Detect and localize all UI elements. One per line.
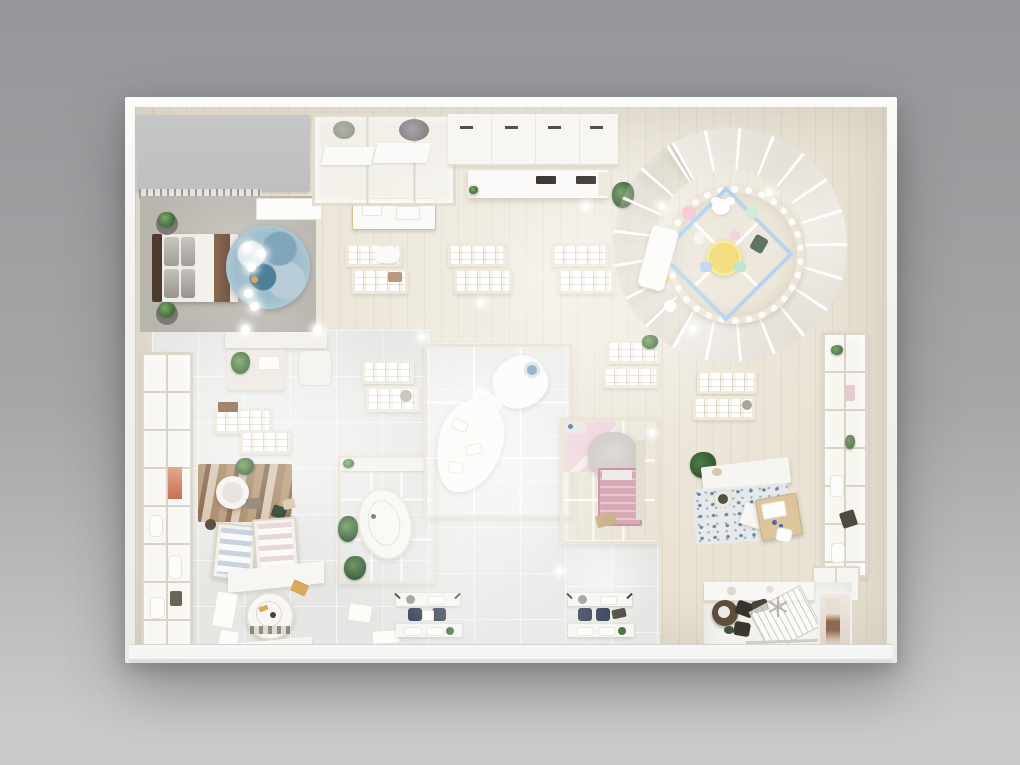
cabinet-handle xyxy=(590,126,603,129)
island-display-item xyxy=(576,176,596,184)
shelf-bottle xyxy=(150,597,165,619)
desk-cards xyxy=(428,596,445,605)
ceiling-spot xyxy=(659,203,665,209)
desk-set xyxy=(566,593,634,639)
checkout-table-tray xyxy=(718,606,730,618)
table-compartments xyxy=(365,363,411,381)
checkout-chair xyxy=(733,621,751,638)
angled-display-slab xyxy=(321,147,375,165)
dark-display-item xyxy=(611,608,627,620)
kids-chair-mint xyxy=(734,262,746,272)
ceiling-spot xyxy=(419,334,425,340)
table-compartments xyxy=(561,271,611,291)
table-wood-item xyxy=(388,272,402,282)
desk-pot xyxy=(578,595,587,604)
bed-pillow xyxy=(164,269,179,298)
blue-round-rug xyxy=(226,225,310,309)
floor-card-display xyxy=(347,602,373,623)
ceiling-spot xyxy=(649,430,655,436)
desk-blue-flowers xyxy=(772,520,777,525)
table-pouf xyxy=(742,400,752,410)
right-shelf-grid xyxy=(825,335,865,575)
angled-display-slab xyxy=(373,143,432,163)
lounge-item xyxy=(598,627,616,636)
table-compartments xyxy=(457,271,509,291)
toy-ball-pink xyxy=(682,206,696,220)
ceiling-spot xyxy=(478,300,484,306)
desk-set xyxy=(394,593,462,639)
bed-pillow xyxy=(181,237,195,266)
lounge-item xyxy=(404,627,422,636)
pendant-light xyxy=(243,243,252,252)
display-table xyxy=(558,268,614,294)
ottoman xyxy=(246,498,261,509)
kids-chair-blue xyxy=(700,262,712,272)
pendant-light xyxy=(244,289,253,298)
navy-chair xyxy=(596,608,610,621)
cabinet-compartments xyxy=(217,411,269,431)
bunny-toy xyxy=(712,199,730,215)
cabinet-wood-box xyxy=(218,402,238,412)
display-table xyxy=(697,370,757,394)
flower-bouquet xyxy=(399,119,429,141)
pendant-light xyxy=(241,325,250,334)
counter-item xyxy=(712,468,722,476)
green-pot xyxy=(618,627,626,635)
navy-chair xyxy=(578,608,592,621)
table-compartments xyxy=(700,373,754,391)
shelf-pink-item xyxy=(845,385,855,401)
table-compartments xyxy=(606,369,656,385)
shelf-bottle xyxy=(831,543,845,563)
bed-duvet xyxy=(196,234,214,302)
navy-chair xyxy=(408,608,422,621)
bed-pillow xyxy=(181,269,195,298)
top-wall-glass-cabinet xyxy=(312,114,456,206)
side-stool xyxy=(205,519,216,530)
nursery-side-rail xyxy=(636,440,645,520)
island-display-item xyxy=(536,176,556,184)
ceiling-spot xyxy=(583,203,589,209)
desk-cards xyxy=(600,596,617,605)
table-item xyxy=(258,356,280,370)
cabinet-handle xyxy=(548,126,561,129)
table-pouf xyxy=(400,390,412,402)
counter-mini-shelf xyxy=(447,461,463,474)
cabinet-handle xyxy=(505,126,518,129)
display-table xyxy=(603,366,659,388)
render-backdrop xyxy=(0,0,1020,765)
desk-pot xyxy=(406,595,415,604)
display-items-row xyxy=(250,626,290,634)
shelf-bottle xyxy=(168,555,182,579)
left-wall-shelf xyxy=(141,352,193,656)
ceiling-spot xyxy=(766,190,772,196)
table-compartments xyxy=(555,246,605,264)
flower-bouquet xyxy=(333,121,355,139)
desk-mini-table xyxy=(422,610,434,621)
pendant-light-gold xyxy=(251,276,258,283)
basin-display xyxy=(298,350,332,386)
counter-item xyxy=(371,514,376,519)
lounge-item xyxy=(576,627,594,636)
round-stool xyxy=(714,490,732,508)
toddler-bed-pillow xyxy=(602,470,632,480)
entrance-walkway xyxy=(129,644,893,660)
toy-ball-white xyxy=(664,300,676,312)
kids-chair-pink xyxy=(730,231,740,240)
entry-table-item xyxy=(396,206,420,220)
display-table xyxy=(454,268,512,294)
toy-ball-mint xyxy=(746,206,759,219)
cabinet-compartments xyxy=(243,433,289,451)
table-cushion xyxy=(374,247,400,263)
island-counter xyxy=(468,170,608,198)
table-dark-item xyxy=(270,612,276,618)
bed-headboard xyxy=(152,234,162,302)
storefront-front-face xyxy=(129,659,893,663)
bunny-toy-small xyxy=(694,232,704,244)
display-cabinet xyxy=(240,430,292,454)
shelf-artwork xyxy=(168,467,182,499)
shelf-bottle xyxy=(149,515,163,537)
pendant-light xyxy=(313,325,322,334)
lounge-item xyxy=(426,627,444,636)
navy-chair xyxy=(432,608,446,621)
toybox-item xyxy=(568,424,573,429)
display-table xyxy=(552,243,608,267)
ceiling-spot xyxy=(690,326,696,332)
green-pot xyxy=(446,627,454,635)
shelf-bottle xyxy=(830,475,844,497)
island-end-shelf xyxy=(598,172,610,196)
pendant-light xyxy=(257,249,266,258)
table-compartments xyxy=(451,246,503,264)
cabinet-handle xyxy=(460,126,473,129)
window-poster-photo xyxy=(826,598,840,650)
display-table xyxy=(362,360,414,384)
desk-chair xyxy=(775,526,794,543)
top-wall-white-cabinet xyxy=(448,114,618,166)
pendant-light xyxy=(247,263,256,272)
right-wall-shelf xyxy=(822,332,868,578)
armchair-seat xyxy=(222,482,243,503)
round-table-ring xyxy=(256,601,282,627)
counter-fan-display xyxy=(524,362,540,378)
display-table xyxy=(366,386,420,412)
shelf-dark-item xyxy=(170,591,182,606)
display-table xyxy=(448,243,506,267)
pendant-light xyxy=(250,302,259,311)
storage-roof xyxy=(137,115,310,191)
bedroom-front-counter xyxy=(225,332,327,348)
checkout-plant xyxy=(724,626,734,634)
ceiling-spot xyxy=(557,568,563,574)
bed-pillow xyxy=(164,237,179,266)
